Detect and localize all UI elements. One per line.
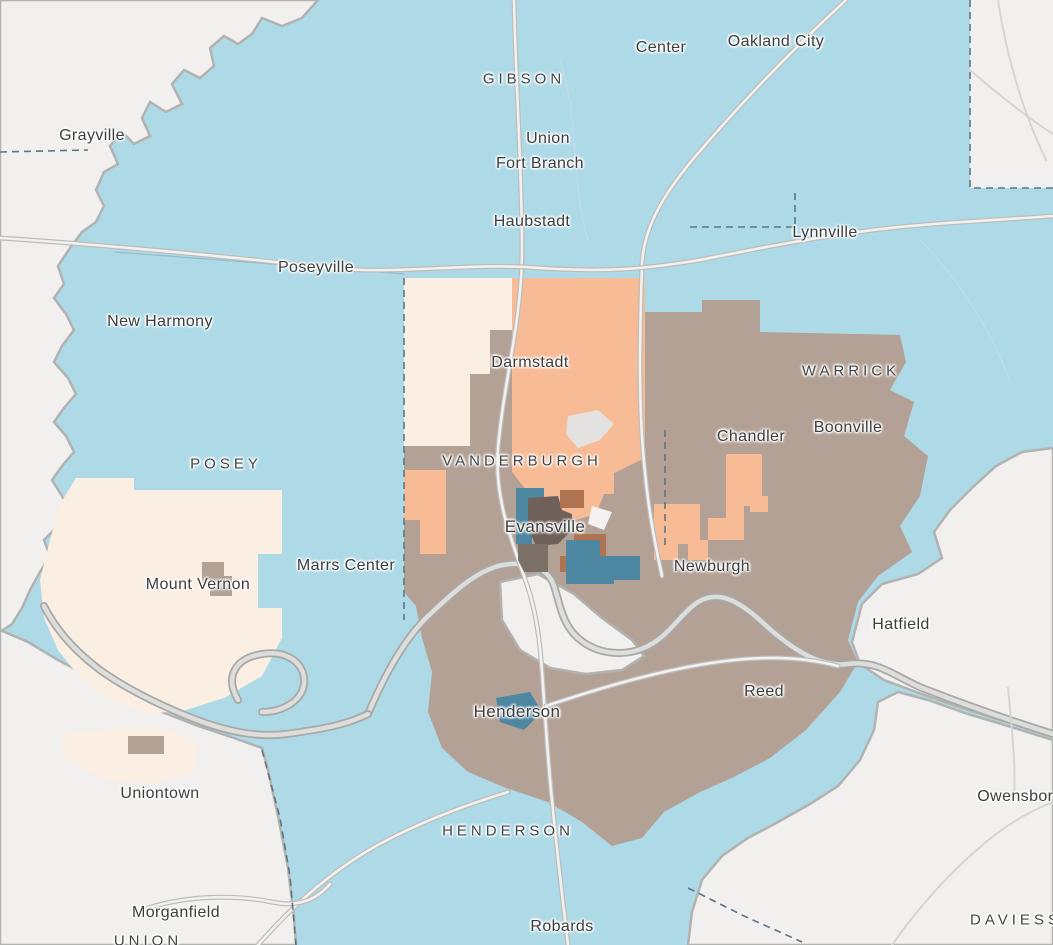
tract-newburgh-orange-small[interactable]: [750, 496, 768, 512]
map-viewport[interactable]: CenterOakland CityGIBSONGrayvilleUnionFo…: [0, 0, 1053, 945]
tract-evansville-ne-orange[interactable]: [584, 470, 614, 494]
tract-teal-east[interactable]: [614, 556, 640, 580]
tract-downtown-gray[interactable]: [518, 544, 548, 572]
map-canvas[interactable]: [0, 0, 1053, 945]
uniontown-town-area: [128, 736, 164, 754]
tract-rust-north[interactable]: [560, 490, 584, 508]
region-northeast-corner[interactable]: [970, 0, 1053, 188]
